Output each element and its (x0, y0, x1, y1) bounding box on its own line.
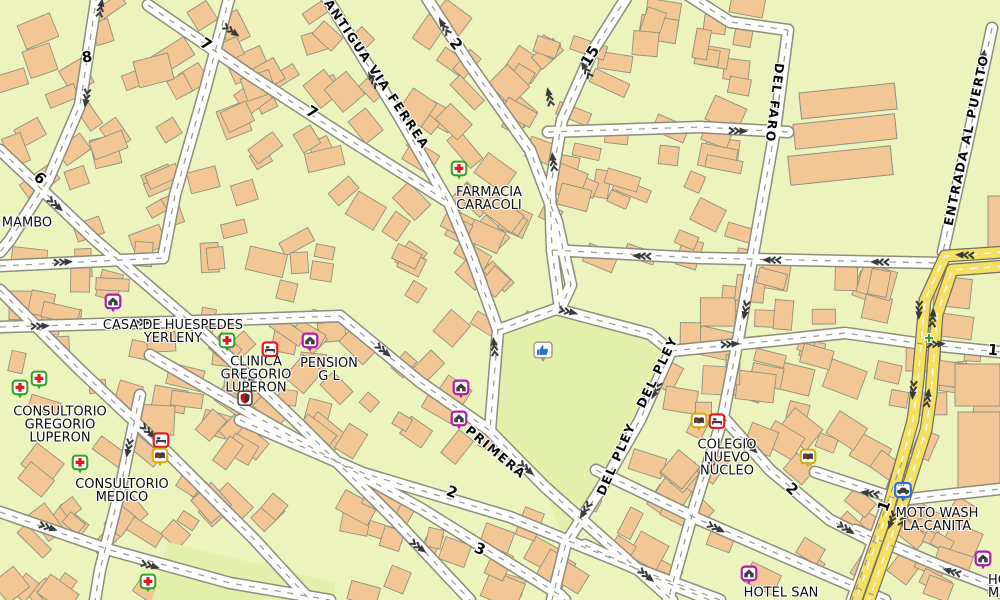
label-line: LUPERON (13, 432, 107, 445)
label-line: NUCLEO (698, 465, 757, 478)
pension-g-l-label: PENSION G L (300, 357, 358, 383)
label-line: HOTEL SAN (744, 587, 819, 600)
lodging-icon[interactable] (302, 332, 319, 352)
street-label-mambo: MAMBO (2, 217, 52, 230)
colegio-nuevo-nucleo-label: COLEGIO NUEVO NUCLEO (698, 439, 757, 478)
consultorio-medico-label: CONSULTORIO MEDICO (75, 478, 169, 504)
shield-icon[interactable] (237, 390, 253, 407)
car-wash-icon[interactable] (894, 482, 912, 503)
lodging-icon[interactable] (975, 550, 992, 570)
first-aid-icon[interactable] (219, 332, 236, 352)
hotel-clipped-label: HO MI (988, 574, 1000, 600)
lodging-icon[interactable] (451, 410, 468, 430)
label-line: LA-CANITA (896, 520, 979, 533)
school-icon[interactable] (800, 448, 817, 468)
street-label-1-right: 1 (987, 341, 999, 360)
first-aid-icon[interactable] (31, 370, 48, 390)
label-line: CARACOLI (456, 199, 522, 212)
lodging-icon[interactable] (453, 379, 470, 399)
green-plus-icon[interactable] (924, 333, 935, 344)
label-line: MEDICO (75, 491, 169, 504)
label-line: MI (988, 587, 1000, 600)
map-render-layer (0, 0, 1000, 600)
red-box-icon[interactable] (262, 341, 279, 358)
school-icon[interactable] (152, 447, 169, 467)
map-canvas[interactable]: ANTIGUA VIA FERREA DEL FARO ENTRADA AL P… (0, 0, 1000, 600)
hotel-san-label: HOTEL SAN (744, 587, 819, 600)
first-aid-icon[interactable] (140, 573, 157, 593)
clinica-gregorio-luperon-label: CLINICA GREGORIO LUPERON (221, 356, 292, 395)
farmacia-caracoli-label: FARMACIA CARACOLI (456, 186, 522, 212)
consultorio-gregorio-luperon-label: CONSULTORIO GREGORIO LUPERON (13, 406, 107, 445)
moto-wash-la-canita-label: MOTO WASH LA-CANITA (896, 507, 979, 533)
first-aid-icon[interactable] (12, 379, 29, 399)
lodging-icon[interactable] (105, 293, 122, 313)
school-icon[interactable] (691, 412, 708, 432)
red-box-icon[interactable] (709, 413, 726, 430)
label-line: G L (300, 370, 358, 383)
first-aid-icon[interactable] (72, 454, 89, 474)
label-line: LUPERON (221, 382, 292, 395)
thumbs-up-icon[interactable] (533, 341, 553, 363)
first-aid-icon[interactable] (451, 160, 468, 180)
lodging-icon[interactable] (741, 565, 758, 585)
